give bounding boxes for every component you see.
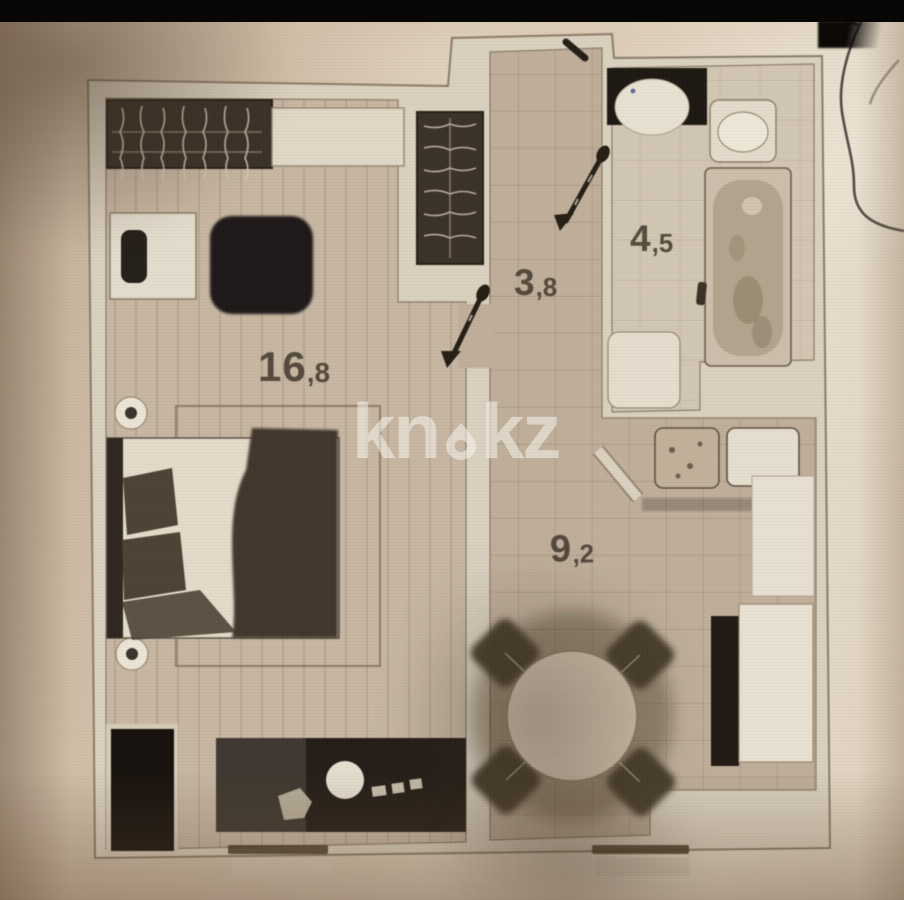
- area-value: 9: [549, 530, 572, 569]
- desk: [110, 213, 196, 299]
- armchair: [210, 216, 313, 314]
- shelf-cabinet: [272, 108, 404, 166]
- window-tab: [596, 858, 690, 876]
- letterbox-bar: [0, 0, 904, 22]
- wall-lamp: [115, 397, 147, 429]
- area-value: 4: [630, 220, 652, 257]
- bathtub: [705, 168, 791, 366]
- washing-machine: [607, 68, 707, 135]
- sink-circle: [326, 761, 364, 799]
- area-label-kitchen: 9,2: [549, 529, 594, 569]
- wall-lamp: [116, 638, 148, 670]
- area-label-hallway: 3,8: [514, 264, 557, 301]
- floor-plan-photo: 16,8 3,8 4,5 9,2 kn kz: [0, 0, 904, 900]
- bed-pillow: [122, 532, 186, 600]
- bath-cabinet: [608, 332, 680, 408]
- dining-table: [507, 651, 637, 781]
- window-sill: [228, 845, 328, 854]
- bed-blanket: [232, 428, 338, 638]
- vent-shaft: [752, 476, 814, 596]
- plan-paper: 16,8 3,8 4,5 9,2: [0, 0, 904, 900]
- low-wardrobe: [106, 724, 178, 856]
- wardrobe-hatched: [107, 100, 272, 180]
- bed: [107, 428, 339, 640]
- tv-console: [216, 738, 466, 832]
- window-tab: [232, 858, 332, 876]
- floor-plan-drawing: [0, 0, 904, 900]
- bed-pillow: [123, 468, 178, 535]
- area-label-bathroom: 4,5: [630, 220, 673, 257]
- desk-chair: [121, 230, 147, 283]
- area-value: 16: [258, 346, 307, 388]
- counter: [711, 604, 813, 766]
- letterbox-corner: [818, 21, 904, 48]
- bed-headboard: [107, 438, 123, 638]
- area-value: 3: [514, 264, 536, 301]
- window-sill: [592, 845, 689, 854]
- wash-basin: [615, 79, 689, 135]
- hall-closet-hatched: [417, 112, 483, 264]
- toilet: [710, 100, 776, 162]
- kitchen-unit: [655, 428, 719, 488]
- area-label-living: 16,8: [258, 346, 330, 388]
